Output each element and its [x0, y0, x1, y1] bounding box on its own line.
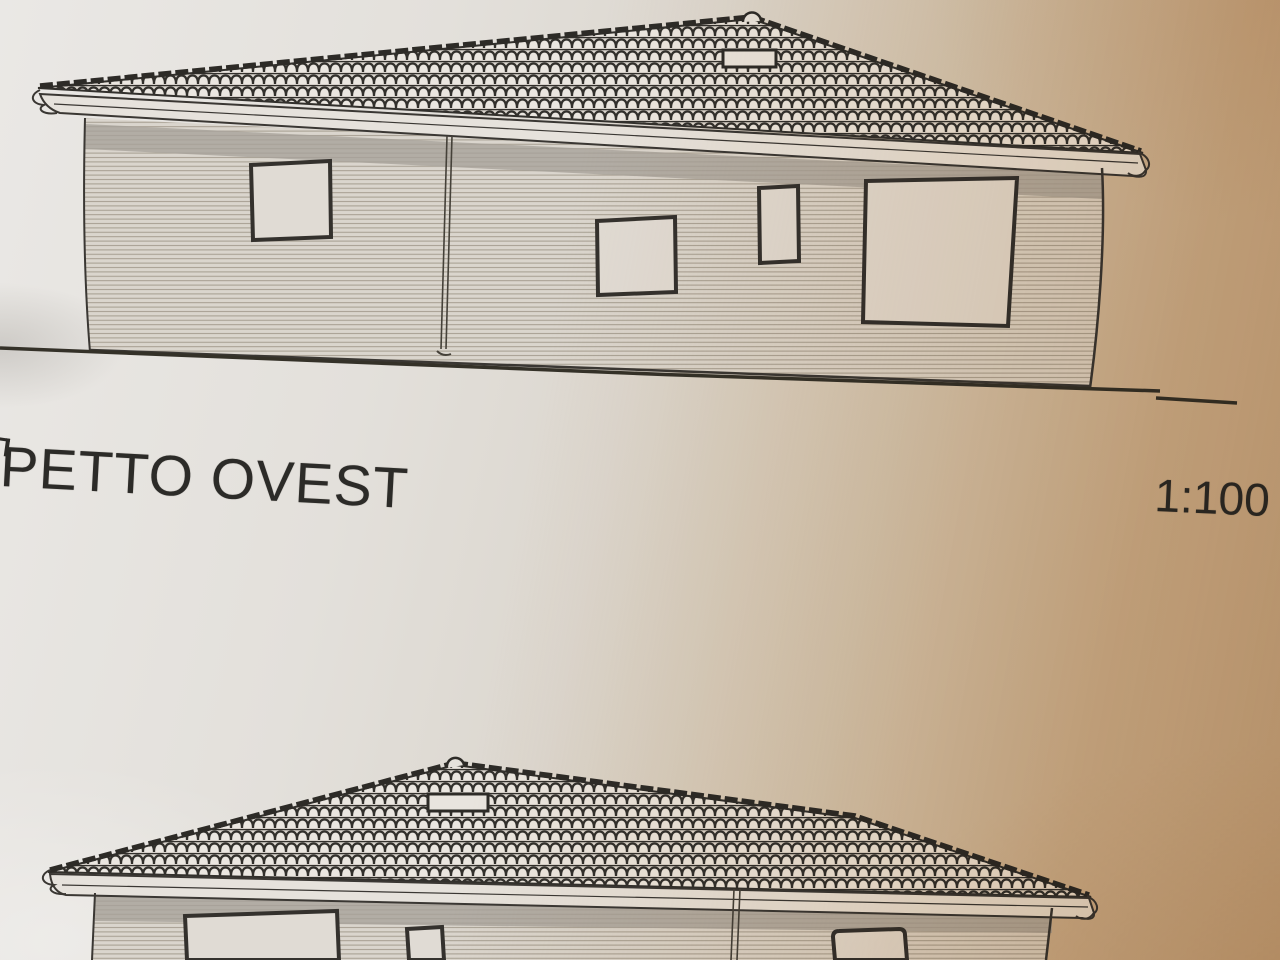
roof-vent: [723, 50, 776, 67]
roof-vent: [428, 794, 488, 811]
window-large-left: [185, 911, 339, 960]
window-right: [833, 929, 907, 960]
window-narrow: [759, 186, 799, 263]
scale-label: 1:100: [1154, 468, 1271, 527]
west-elevation-drawing: [0, 13, 1237, 403]
window-large: [863, 178, 1017, 326]
architectural-plan-photo: PETTO OVEST 1:100: [0, 0, 1280, 960]
ridge-finial: [743, 13, 761, 22]
window-narrow: [407, 927, 444, 960]
partial-elevation-drawing: [43, 758, 1097, 960]
window-small-left: [251, 161, 331, 240]
window-small-middle: [597, 217, 676, 295]
ground-line-step: [1156, 398, 1237, 403]
